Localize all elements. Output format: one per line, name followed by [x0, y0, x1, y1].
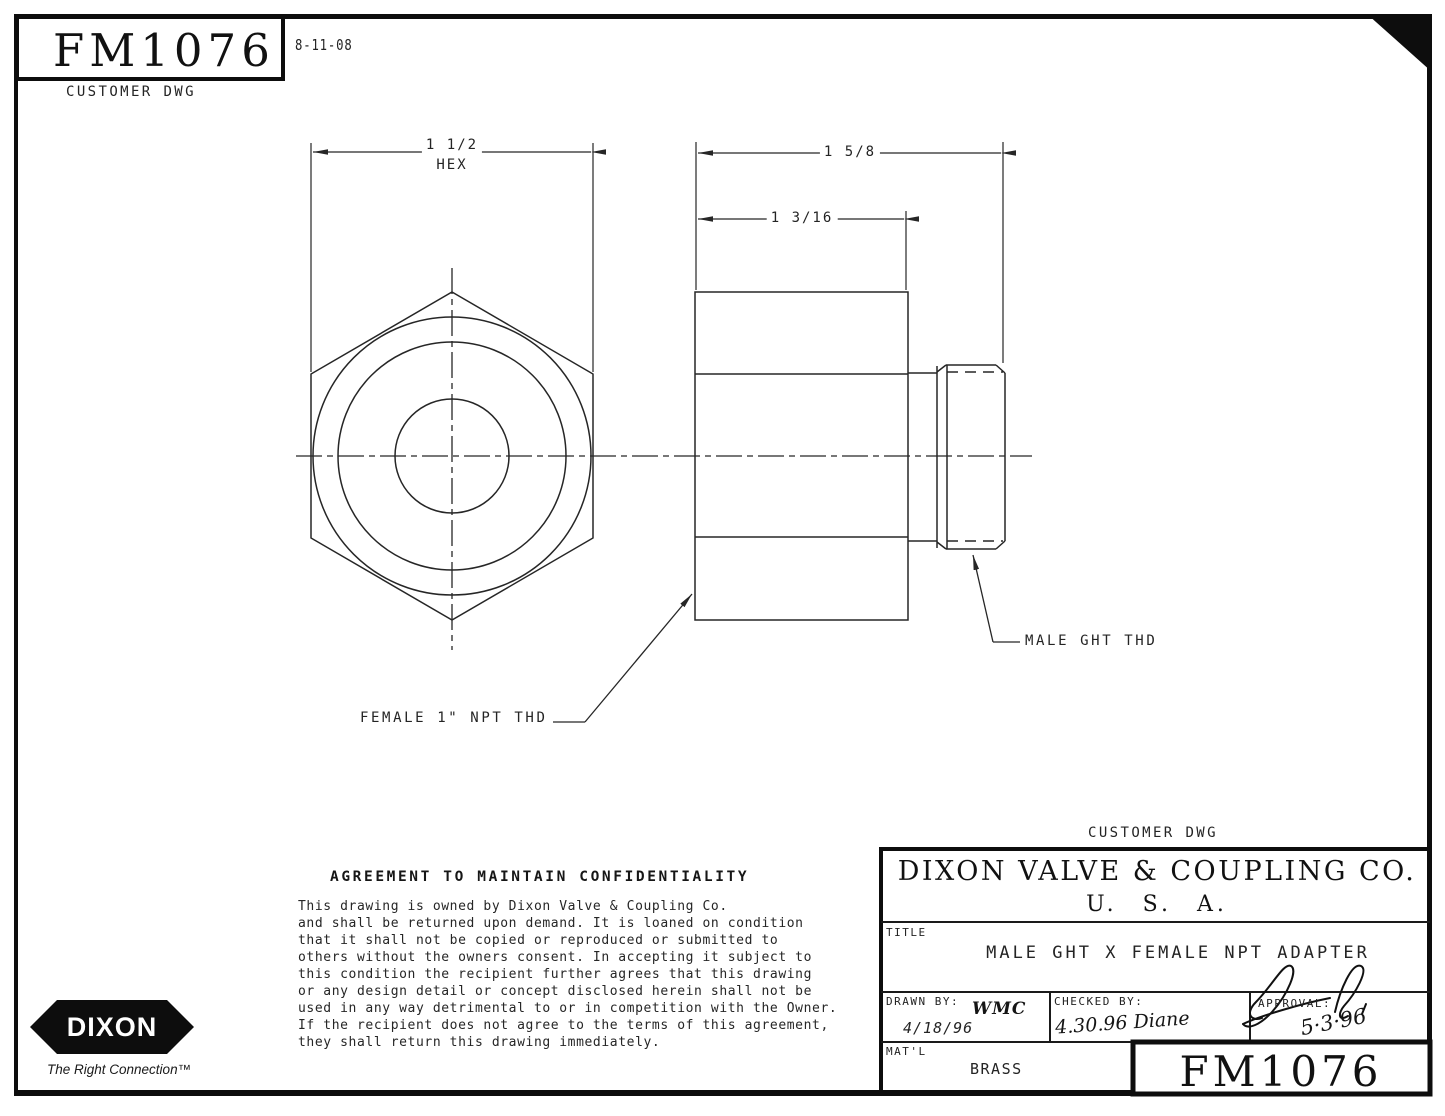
drawn-date-value: 4/18/96: [903, 1019, 973, 1037]
npt-leader: [585, 594, 692, 722]
ght-leader: [973, 555, 993, 642]
hex-front-view: [296, 268, 1032, 650]
leader-lines: [553, 555, 1020, 722]
approval-label: APPROVAL:: [1258, 997, 1331, 1010]
dim-body-length: 1 3/16: [767, 210, 838, 226]
agreement-line: If the recipient does not agree to the t…: [298, 1018, 837, 1035]
part-number-header: FM1076: [53, 24, 275, 77]
checked-by-label: CHECKED BY:: [1054, 995, 1143, 1008]
customer-dwg-label-bottom: CUSTOMER DWG: [1088, 825, 1218, 841]
callout-female-npt: FEMALE 1" NPT THD: [360, 710, 548, 726]
agreement-heading: AGREEMENT TO MAINTAIN CONFIDENTIALITY: [330, 869, 749, 885]
company-name: DIXON VALVE & COUPLING CO.: [898, 856, 1417, 887]
drawing-title: MALE GHT X FEMALE NPT ADAPTER: [986, 943, 1370, 963]
agreement-line: they shall return this drawing immediate…: [298, 1035, 837, 1052]
agreement-line: or any design detail or concept disclose…: [298, 984, 837, 1001]
dim-hex-label: HEX: [433, 157, 470, 173]
material-value: BRASS: [970, 1060, 1023, 1078]
agreement-line: This drawing is owned by Dixon Valve & C…: [298, 899, 837, 916]
company-country: U. S. A.: [1086, 892, 1228, 917]
customer-dwg-label-top: CUSTOMER DWG: [66, 84, 196, 100]
agreement-body: This drawing is owned by Dixon Valve & C…: [298, 899, 837, 1052]
agreement-line: that it shall not be copied or reproduce…: [298, 933, 837, 950]
drawn-by-label: DRAWN BY:: [886, 995, 959, 1008]
agreement-line: this condition the recipient further agr…: [298, 967, 837, 984]
agreement-line: and shall be returned upon demand. It is…: [298, 916, 837, 933]
revision-date: 8-11-08: [295, 36, 353, 54]
dim-hex-width: 1 1/2: [422, 137, 482, 153]
part-number-footer: FM1076: [1179, 1047, 1382, 1096]
dixon-logo-text: DIXON: [67, 1012, 158, 1043]
dimension-lines: [311, 142, 1003, 372]
agreement-line: used in any way detrimental to or in com…: [298, 1001, 837, 1018]
ght-thread-outline: [937, 365, 1005, 549]
dim-overall-length: 1 5/8: [820, 144, 880, 160]
title-label: TITLE: [886, 926, 927, 939]
drawing-sheet: FM1076 8-11-08 CUSTOMER DWG 1 1/2 HEX 1 …: [0, 0, 1445, 1116]
material-label: MAT'L: [886, 1045, 927, 1058]
dixon-tagline: The Right Connection™: [47, 1062, 191, 1077]
callout-male-ght: MALE GHT THD: [1025, 633, 1157, 649]
drawn-by-value: WMC: [972, 999, 1026, 1019]
agreement-line: others without the owners consent. In ac…: [298, 950, 837, 967]
corner-fold-mark: [1367, 14, 1432, 72]
